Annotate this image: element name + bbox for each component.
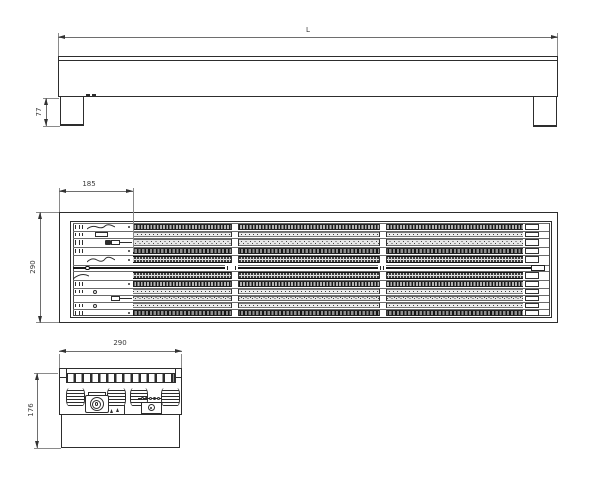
grate-row-8 <box>73 280 549 287</box>
connector-plug <box>111 296 120 300</box>
element-band <box>133 289 523 294</box>
arrow-left-icon <box>59 349 66 353</box>
rivet-dot <box>128 259 130 261</box>
terminal-block <box>525 239 539 246</box>
rivet-dot <box>128 250 130 252</box>
terminal-block <box>525 303 539 308</box>
grate-row-3 <box>73 238 549 246</box>
fixing-hole <box>93 290 97 294</box>
support-gap <box>231 232 239 237</box>
support-gap <box>231 296 239 301</box>
mount-bar <box>82 290 83 293</box>
grate-row-6 <box>73 265 549 270</box>
element-band <box>133 232 523 237</box>
coupling-bead-1 <box>141 397 144 400</box>
connector-lead <box>120 298 132 299</box>
grate-row-10 <box>73 295 549 301</box>
mount-bar <box>82 240 83 245</box>
support-gap <box>379 239 387 246</box>
shaft-hub <box>85 266 90 271</box>
coupling-bead-3 <box>149 397 152 400</box>
dim-line-290-side <box>59 351 182 352</box>
mount-bar <box>79 304 80 307</box>
grate-row-2 <box>73 231 549 237</box>
coupling-bead-5 <box>157 397 160 400</box>
mount-bar <box>75 233 76 236</box>
terminal-block <box>525 272 539 279</box>
ext-77-bottom <box>43 126 60 127</box>
under-dash-2 <box>92 94 96 96</box>
terminal-block <box>525 248 539 254</box>
rivet-dot <box>128 226 130 228</box>
arrow-left-icon <box>58 35 65 39</box>
mount-bar <box>79 249 80 253</box>
grate-row-12 <box>73 309 549 316</box>
arrow-down-icon <box>38 316 42 323</box>
mount-bar <box>79 282 80 286</box>
bearing-dot <box>150 407 152 409</box>
leg-left <box>60 97 84 126</box>
grate-row-7 <box>73 271 549 279</box>
terminal-block <box>525 289 539 294</box>
fin-cluster-2 <box>107 388 126 406</box>
rivet-dot <box>128 312 130 314</box>
wave-glyph-icon <box>73 272 89 280</box>
dim-label-side-width: 290 <box>106 339 134 347</box>
dim-line-185 <box>59 191 133 192</box>
grate-rail <box>66 373 176 383</box>
mount-bar <box>82 225 83 229</box>
mount-bar <box>75 225 76 229</box>
dim-label-plan-width: 290 <box>29 256 37 278</box>
side-lower-box <box>61 415 180 448</box>
element-band <box>133 303 523 308</box>
grate-row-5 <box>73 255 549 263</box>
coupling-bead-2 <box>145 397 148 400</box>
support-gap <box>379 303 387 308</box>
dim-line-176 <box>37 373 38 448</box>
clip-box <box>95 232 108 237</box>
support-gap <box>379 224 387 230</box>
connector-lead <box>120 242 132 243</box>
support-gap <box>379 281 387 287</box>
support-gap <box>231 248 239 254</box>
mount-bar <box>82 249 83 253</box>
ext-185-right <box>133 188 134 252</box>
terminal-block <box>525 296 539 301</box>
mount-bar <box>79 225 80 229</box>
dim-label-side-height: 176 <box>27 400 35 420</box>
arrow-up-icon <box>38 212 42 219</box>
terminal-block <box>525 281 539 287</box>
under-dash-1 <box>86 94 90 96</box>
element-band <box>133 281 523 287</box>
support-gap <box>379 232 387 237</box>
support-gap <box>231 224 239 230</box>
dim-line-L <box>58 37 558 38</box>
grate-row-4 <box>73 247 549 254</box>
mount-bar <box>75 290 76 293</box>
terminal-block <box>525 232 539 237</box>
arrow-right-icon <box>175 349 182 353</box>
fin-cluster-1 <box>66 388 85 406</box>
mount-bar <box>75 304 76 307</box>
mount-bar <box>82 282 83 286</box>
arrow-right-icon <box>551 35 558 39</box>
support-gap <box>231 303 239 308</box>
coupling-bead-4 <box>153 397 156 400</box>
wave-glyph-icon <box>87 224 115 231</box>
mount-bar <box>79 240 80 245</box>
support-gap <box>231 239 239 246</box>
dim-label-leg-height: 77 <box>35 102 43 122</box>
mount-bar <box>82 304 83 307</box>
support-gap <box>379 272 387 279</box>
support-gap <box>379 289 387 294</box>
mount-bar <box>79 290 80 293</box>
fixing-hole <box>93 304 97 308</box>
grate-row-11 <box>73 302 549 308</box>
connector-plug <box>111 240 120 244</box>
corner-tab-right <box>175 368 182 378</box>
support-gap <box>231 310 239 316</box>
support-gap <box>231 256 239 263</box>
element-band <box>133 310 523 316</box>
mount-bar <box>79 311 80 315</box>
drive-shaft <box>73 267 531 270</box>
support-gap <box>379 296 387 301</box>
arrow-down-icon <box>35 441 39 448</box>
housing-top-rib <box>58 60 558 62</box>
element-band <box>133 256 523 263</box>
support-gap <box>231 272 239 279</box>
terminal-block <box>525 224 539 230</box>
arrow-left-icon <box>59 189 66 193</box>
fin-cluster-4 <box>161 388 180 406</box>
support-gap <box>379 256 387 263</box>
mount-bar <box>75 311 76 315</box>
grate-row-9 <box>73 288 549 294</box>
arrow-up-icon <box>35 373 39 380</box>
motor-circle-hub <box>95 402 99 406</box>
dim-label-lead-in: 185 <box>77 180 101 188</box>
arrow-down-icon <box>44 119 48 126</box>
technical-drawing-canvas: L 77 185 290 <box>0 0 600 482</box>
wave-glyph-icon <box>87 256 115 264</box>
support-gap <box>231 289 239 294</box>
element-band <box>133 224 523 230</box>
element-band <box>133 296 523 301</box>
element-band <box>133 272 523 279</box>
datum-tick <box>124 405 125 414</box>
mount-bar <box>82 233 83 236</box>
rivet-dot <box>128 283 130 285</box>
mount-bar <box>75 282 76 286</box>
arrow-up-icon <box>44 98 48 105</box>
mount-bar <box>75 240 76 245</box>
housing-body <box>58 56 558 97</box>
support-gap <box>379 310 387 316</box>
terminal-block <box>525 310 539 316</box>
element-band <box>133 248 523 254</box>
ext-290s-left <box>59 354 60 368</box>
dim-line-290 <box>40 212 41 323</box>
support-gap <box>231 281 239 287</box>
mount-bar <box>79 233 80 236</box>
dim-label-length: L <box>298 26 318 34</box>
grate-row-1 <box>73 223 549 230</box>
leg-right <box>533 97 557 127</box>
terminal-block <box>525 256 539 263</box>
element-band <box>133 239 523 246</box>
support-gap <box>379 248 387 254</box>
mount-bar <box>82 311 83 315</box>
ext-290s-right <box>181 354 182 368</box>
mount-bar <box>75 249 76 253</box>
